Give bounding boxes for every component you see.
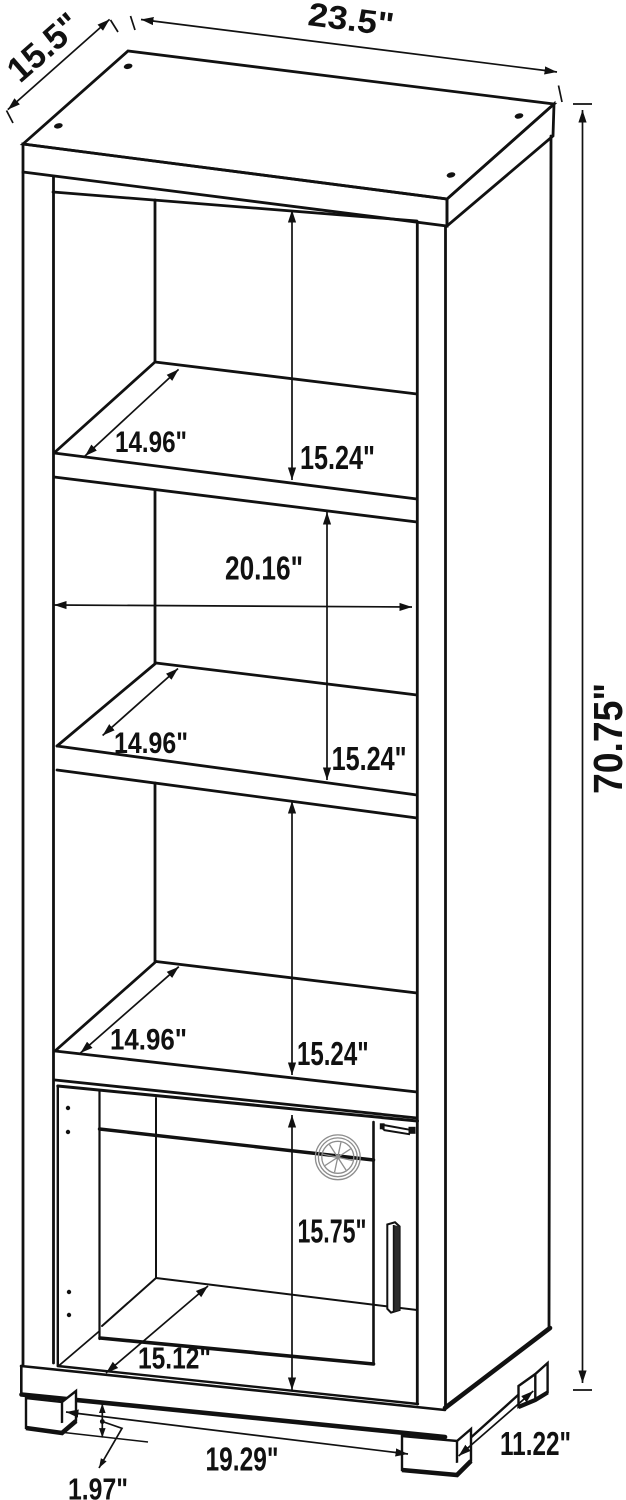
svg-text:15.75": 15.75" [298, 1213, 367, 1250]
svg-text:14.96": 14.96" [115, 426, 187, 459]
svg-text:15.12": 15.12" [138, 1341, 211, 1376]
svg-text:19.29": 19.29" [206, 1441, 279, 1478]
svg-text:14.96": 14.96" [110, 1024, 187, 1057]
svg-text:11.22": 11.22" [500, 1425, 571, 1462]
svg-text:15.24": 15.24" [297, 1035, 369, 1072]
svg-text:15.24": 15.24" [300, 439, 375, 476]
svg-text:14.96": 14.96" [114, 727, 188, 760]
svg-text:20.16": 20.16" [225, 550, 303, 587]
svg-text:70.75": 70.75" [585, 683, 626, 794]
svg-text:15.24": 15.24" [332, 740, 407, 777]
svg-text:1.97": 1.97" [68, 1472, 128, 1500]
